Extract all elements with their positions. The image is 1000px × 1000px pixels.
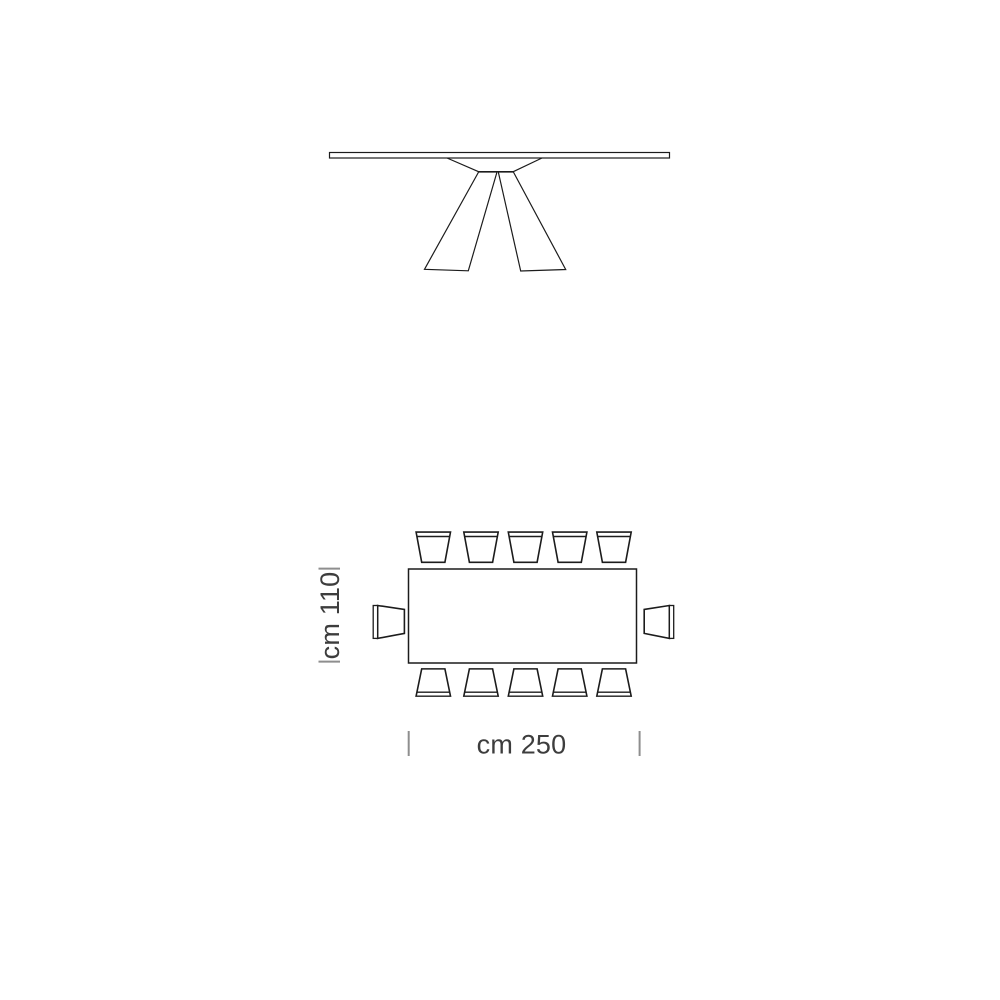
width-dimension-label: cm 250	[477, 730, 567, 760]
pedestal-left-leg	[425, 172, 498, 271]
chair-top-4	[553, 532, 587, 562]
technical-drawing: cm 110 cm 250	[0, 0, 1000, 1000]
chair-right-end	[644, 606, 674, 639]
chair-top-3	[508, 532, 542, 562]
chair-top-5	[597, 532, 631, 562]
tabletop-plan	[409, 569, 637, 663]
chair-left-backrest	[373, 606, 377, 639]
pedestal-neck	[447, 158, 542, 172]
chair-bottom-5	[597, 669, 631, 696]
chair-bottom-4	[553, 669, 587, 696]
top-plan-view	[373, 532, 674, 696]
drawing-canvas: cm 110 cm 250	[0, 0, 1000, 1000]
chair-left-seat	[378, 606, 405, 639]
depth-dimension-label: cm 110	[315, 572, 345, 660]
chair-bottom-2	[464, 669, 498, 696]
chair-row-bottom	[416, 669, 631, 696]
front-elevation-view	[330, 153, 670, 272]
chair-bottom-1	[416, 669, 450, 696]
pedestal-right-leg	[498, 172, 565, 271]
chair-right-seat	[644, 606, 669, 639]
chair-row-top	[416, 532, 631, 562]
chair-left-end	[373, 606, 404, 639]
chair-top-2	[464, 532, 498, 562]
tabletop-side-profile	[330, 153, 670, 159]
chair-top-1	[416, 532, 450, 562]
chair-bottom-3	[508, 669, 542, 696]
chair-right-backrest	[669, 606, 673, 639]
